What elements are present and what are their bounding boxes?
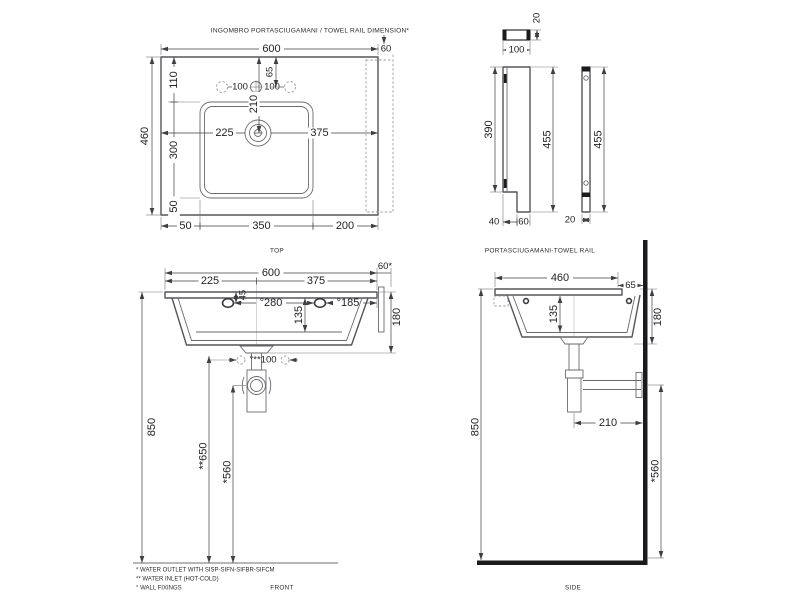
front-dim-185: °185 <box>337 297 360 309</box>
front-dim-45: °45 <box>238 290 249 304</box>
side-dim-210: 210 <box>599 417 617 429</box>
wall-section <box>643 240 648 565</box>
dim-460-depth: 460 <box>139 127 151 145</box>
side-body-outline <box>507 295 640 337</box>
bowl-inner-rim <box>205 107 309 194</box>
bowl-outer-rim <box>200 102 313 198</box>
side-towel-rail-dashed <box>494 296 508 306</box>
dim-60-rail: 60 <box>381 44 392 55</box>
drain-hole <box>245 120 271 146</box>
front-view: 600 225 375 60* °45 °280 °185 135 <box>133 261 403 592</box>
rail-front-view: 390 455 40 60 <box>483 67 558 228</box>
header-note: INGOMBRO PORTASCIUGAMANI / TOWEL RAIL DI… <box>211 28 410 45</box>
top-dim-rail-offset: 60 <box>378 44 394 58</box>
front-dim-inlet: °**100 <box>228 355 298 366</box>
top-dim-225-375: 225 375 <box>161 127 378 139</box>
top-dim-width: 600 <box>161 43 378 55</box>
front-dim-650: **650 <box>198 443 210 470</box>
dim-rail-455-front: 455 <box>542 130 554 148</box>
optional-tap-hole-left <box>217 82 228 93</box>
front-dim-width: 600 225 375 60* <box>165 261 392 290</box>
front-fixing-hole-right <box>315 299 326 308</box>
side-dim-trap: 210 <box>574 413 643 429</box>
front-fixing-hole-left <box>223 299 234 308</box>
front-towel-rail-edge <box>379 287 385 332</box>
front-dim-height: 180 <box>268 292 403 353</box>
side-view: 460 65 135 180 210 850 <box>470 240 665 592</box>
side-dim-65: 65 <box>625 280 636 291</box>
footnote-water-inlet: ** WATER INLET (HOT-COLD) <box>136 577 219 583</box>
towel-rail-views: 20 100 390 455 40 <box>483 13 608 255</box>
top-dim-210: 210 <box>248 57 260 133</box>
dim-225: 225 <box>215 127 233 139</box>
front-dim-135: 135 <box>293 306 305 324</box>
side-dim-heights: 850 *560 <box>470 289 665 560</box>
side-dim-560: *560 <box>650 460 662 483</box>
front-dim-180: 180 <box>391 308 403 326</box>
front-dim-100-inlet: °**100 <box>249 355 276 366</box>
top-view-caption: TOP <box>270 248 284 255</box>
side-dim-850: 850 <box>470 418 482 436</box>
side-dim-135: 135 <box>548 305 560 323</box>
floor-section <box>477 561 648 566</box>
rail-top-view: 20 100 <box>503 13 543 56</box>
dim-50-front: 50 <box>168 200 180 212</box>
side-dim-bowl-depth: 135 <box>548 296 560 333</box>
footnotes: * WATER OUTLET WITH SISP-SIFN-SIFBR-SIFC… <box>136 568 275 592</box>
side-dim-460: 460 <box>551 272 569 284</box>
front-dim-560: *560 <box>222 461 234 484</box>
drawing-canvas: INGOMBRO PORTASCIUGAMANI / TOWEL RAIL DI… <box>0 0 800 600</box>
footnote-water-outlet: * WATER OUTLET WITH SISP-SIFN-SIFBR-SIFC… <box>136 568 275 574</box>
tap-hole-center <box>250 81 263 94</box>
dim-rail-455-side: 455 <box>593 130 605 148</box>
dim-rail-40: 40 <box>489 217 500 228</box>
dim-65-deck: 65 <box>265 67 276 78</box>
rail-caption: PORTASCIUGAMANI-TOWEL RAIL <box>485 248 595 255</box>
side-trap <box>560 337 642 412</box>
dim-110-deck: 110 <box>168 71 180 89</box>
side-dim-height: 180 <box>652 289 664 344</box>
side-fixing-hole-front <box>524 299 529 304</box>
front-dim-375: 375 <box>307 275 325 287</box>
dim-300-bowl: 300 <box>168 141 180 159</box>
rail-fixing-hole-top <box>584 76 588 80</box>
optional-tap-hole-right <box>285 82 296 93</box>
front-dim-280: °280 <box>260 297 283 309</box>
side-view-caption: SIDE <box>565 585 581 592</box>
top-dim-left-chain: 460 110 300 50 <box>139 57 200 217</box>
dim-600-top: 600 <box>262 43 280 55</box>
front-dim-225: 225 <box>201 275 219 287</box>
dim-rail-20-thick: 20 <box>532 13 543 24</box>
dim-350-bowl-width: 350 <box>252 220 270 232</box>
dim-rail-390: 390 <box>483 120 495 138</box>
front-dim-heights: 850 **650 *560 <box>133 292 338 563</box>
dim-100-left: 100 <box>232 82 248 93</box>
footnote-wall-fixings: ° WALL FIXINGS <box>136 586 182 592</box>
dim-50-bowl-left: 50 <box>179 220 191 232</box>
side-dim-180: 180 <box>652 308 664 326</box>
dim-rail-60: 60 <box>518 217 529 228</box>
top-dim-bottom-chain: 50 350 200 <box>161 200 378 232</box>
side-fixing-hole-back <box>627 299 632 304</box>
dim-200-bowl-right: 200 <box>336 220 354 232</box>
dim-rail-100-width: 100 <box>509 45 525 56</box>
side-slab <box>495 289 622 295</box>
rail-fixing-hole-bottom <box>584 181 588 185</box>
dim-375: 375 <box>310 127 328 139</box>
towel-rail-dimension-note: INGOMBRO PORTASCIUGAMANI / TOWEL RAIL DI… <box>211 28 410 35</box>
rail-side-view: 455 20 <box>565 67 608 226</box>
side-dim-depth: 460 65 <box>495 272 643 291</box>
front-dim-600: 600 <box>262 267 280 279</box>
top-view: 600 60 460 110 300 50 <box>139 43 394 255</box>
dim-210-drain: 210 <box>248 95 260 113</box>
front-dim-60-rail: 60* <box>378 261 393 272</box>
dim-rail-20-side: 20 <box>565 215 576 226</box>
front-dim-850: 850 <box>146 418 158 436</box>
towel-rail-dashed-outline <box>366 60 393 212</box>
washbasin-technical-drawing: INGOMBRO PORTASCIUGAMANI / TOWEL RAIL DI… <box>0 0 800 600</box>
front-view-caption: FRONT <box>270 585 294 592</box>
